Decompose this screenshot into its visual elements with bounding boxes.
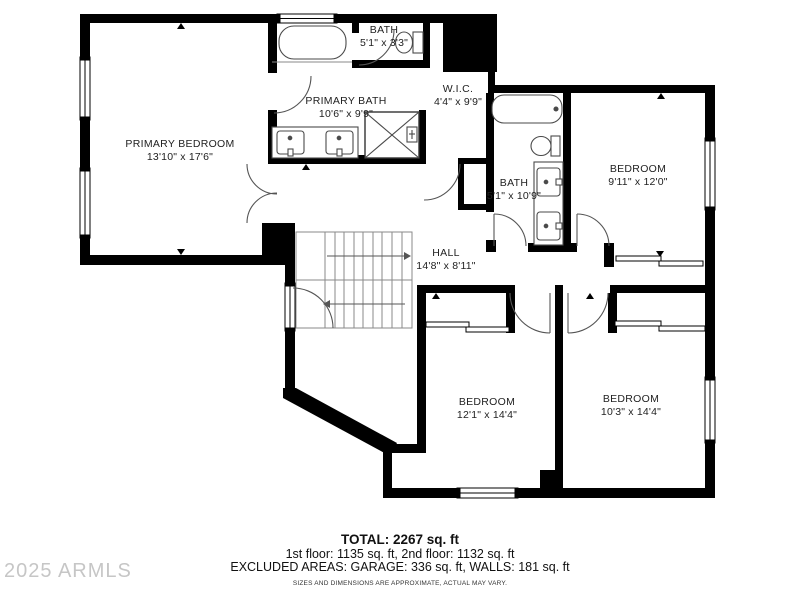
room-dims: 9'11" x 12'0" — [608, 176, 667, 188]
window-east-bedroom-tr — [705, 138, 715, 210]
door-bath-right — [494, 214, 526, 246]
room-dims: 13'10" x 17'6" — [147, 151, 213, 163]
bathtub-icon-right — [492, 95, 562, 123]
room-name: BATH — [500, 177, 528, 189]
room-label-bedroom-bottom-left: BEDROOM 12'1" x 14'4" — [457, 396, 517, 422]
window-left-2 — [80, 168, 90, 238]
room-dims: 5'1" x 3'3" — [360, 37, 408, 49]
room-name: BEDROOM — [603, 393, 659, 405]
room-label-bedroom-top-right: BEDROOM 9'11" x 12'0" — [608, 163, 667, 189]
room-label-primary-bedroom: PRIMARY BEDROOM 13'10" x 17'6" — [125, 138, 234, 164]
primary-bathtub-icon — [272, 26, 352, 62]
floor-plan-drawing — [0, 0, 800, 600]
toilet-icon-right-bath — [531, 136, 560, 156]
door-bedroom-top-right — [577, 214, 609, 246]
room-name: PRIMARY BEDROOM — [125, 138, 234, 150]
closet-door-bedroom-bl — [426, 322, 509, 332]
closet-door-bedroom-tr — [616, 256, 703, 266]
door-bedroom-bottom-left — [510, 293, 550, 333]
stair-up-arrow — [404, 252, 411, 260]
floor-plan-page: PRIMARY BEDROOM 13'10" x 17'6" PRIMARY B… — [0, 0, 800, 600]
total-area-text: TOTAL: 2267 sq. ft — [0, 533, 800, 547]
room-label-bath-right: BATH 5'1" x 10'9" — [487, 177, 541, 203]
room-name: PRIMARY BATH — [305, 95, 386, 107]
room-name: BEDROOM — [610, 163, 666, 175]
armls-watermark: 2025 ARMLS — [4, 560, 132, 583]
room-dims: 10'3" x 14'4" — [601, 406, 661, 418]
door-stair-landing — [293, 288, 333, 328]
room-dims: 5'1" x 10'9" — [487, 190, 541, 202]
room-dims: 4'4" x 9'9" — [434, 96, 482, 108]
primary-double-vanity-icon — [272, 127, 358, 158]
fixtures — [272, 26, 563, 245]
room-label-primary-bath: PRIMARY BATH 10'6" x 9'9" — [305, 95, 386, 121]
room-label-hall: HALL 14'8" x 8'11" — [416, 247, 475, 273]
room-dims: 10'6" x 9'9" — [319, 108, 373, 120]
room-name: HALL — [432, 247, 459, 259]
room-label-bath-top: BATH 5'1" x 3'3" — [360, 24, 408, 50]
room-name: BEDROOM — [459, 396, 515, 408]
room-label-bedroom-bottom-right: BEDROOM 10'3" x 14'4" — [601, 393, 661, 419]
staircase — [296, 232, 412, 328]
closet-door-bedroom-br — [615, 321, 705, 331]
room-dims: 12'1" x 14'4" — [457, 409, 517, 421]
double-vanity-icon-right-bath — [534, 162, 563, 245]
window-top-bath — [277, 14, 337, 23]
room-name: W.I.C. — [443, 83, 473, 95]
room-dims: 14'8" x 8'11" — [416, 260, 475, 272]
floor-areas-text: 1st floor: 1135 sq. ft, 2nd floor: 1132 … — [0, 548, 800, 560]
door-wic — [424, 164, 460, 200]
door-primary-bedroom-top-leaf — [247, 164, 277, 194]
window-stairwell — [285, 283, 295, 331]
door-primary-bedroom-bottom-leaf — [247, 193, 277, 223]
room-label-wic: W.I.C. 4'4" x 9'9" — [434, 83, 482, 109]
window-left-1 — [80, 57, 90, 120]
window-east-bedroom-br — [705, 377, 715, 443]
room-name: BATH — [370, 24, 398, 36]
window-bottom-bedroom-bl — [457, 488, 518, 498]
